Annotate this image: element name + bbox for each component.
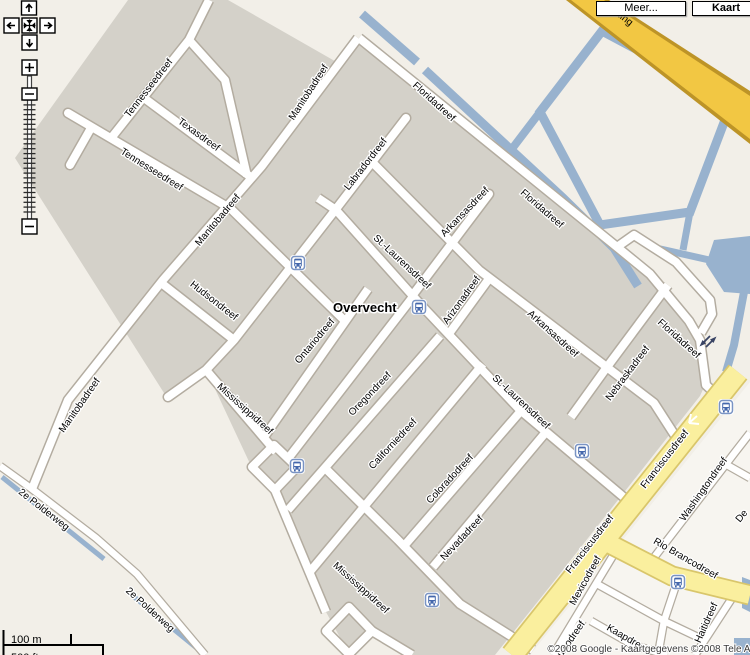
svg-text:©2008 Google - Kaartgegevens ©: ©2008 Google - Kaartgegevens ©2008 Tele … bbox=[547, 644, 750, 655]
svg-text:100 m: 100 m bbox=[11, 634, 42, 646]
svg-text:Overvecht: Overvecht bbox=[333, 300, 397, 315]
